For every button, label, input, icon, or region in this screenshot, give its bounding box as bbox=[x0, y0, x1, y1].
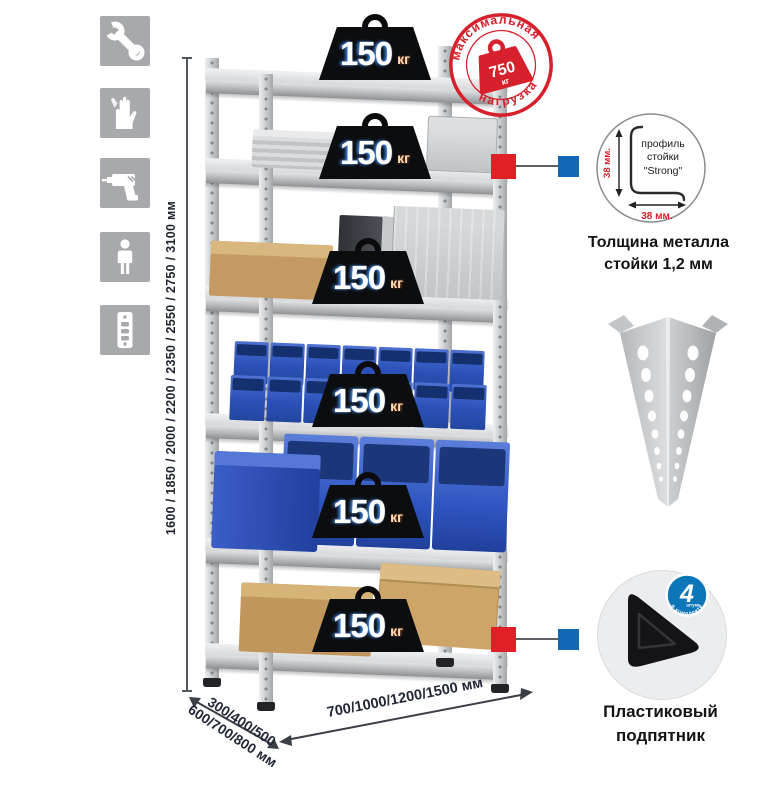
quantity-badge: 4 штуки в комплекте bbox=[664, 572, 710, 618]
weight-icon: 150 кг bbox=[319, 27, 431, 80]
rack-foot bbox=[257, 702, 275, 711]
rack-foot bbox=[203, 678, 221, 687]
connector-blue-square-top bbox=[558, 156, 579, 177]
wrench-icon bbox=[100, 16, 150, 66]
profile-detail-circle: 38 мм. 38 мм. профиль стойки "Strong" bbox=[586, 106, 716, 236]
weight-icon: 150 кг bbox=[319, 126, 431, 179]
shelf-6 bbox=[206, 655, 507, 680]
connector-blue-square-bottom bbox=[558, 629, 579, 650]
gloves-icon bbox=[100, 88, 150, 138]
load-badge-shelf-1: 150 кг bbox=[319, 14, 431, 80]
product-infographic: 1600 / 1850 / 2000 / 2200 / 2350 / 2550 … bbox=[0, 0, 765, 765]
plastic-foot-caption: Пластиковый подпятник bbox=[578, 700, 743, 748]
svg-text:профиль: профиль bbox=[641, 138, 685, 150]
load-badge-shelf-2: 150 кг bbox=[319, 113, 431, 179]
weight-icon: 150 кг bbox=[312, 251, 424, 304]
corner-post-image bbox=[598, 303, 748, 523]
large-bin-left bbox=[211, 451, 321, 552]
stamp-weight-icon: 750 кг bbox=[470, 35, 531, 92]
profile-dim-horizontal: 38 мм. bbox=[641, 211, 673, 222]
height-dimension-label: 1600 / 1850 / 2000 / 2200 / 2350 / 2550 … bbox=[164, 201, 178, 535]
load-badge-shelf-3: 150 кг bbox=[312, 238, 424, 304]
weight-icon: 150 кг bbox=[312, 485, 424, 538]
profile-label: профиль стойки "Strong" bbox=[641, 138, 685, 177]
weight-icon: 150 кг bbox=[312, 374, 424, 427]
drill-icon bbox=[100, 158, 150, 208]
connector-red-square-bottom bbox=[491, 627, 516, 652]
height-dimension-line bbox=[186, 57, 188, 692]
profile-dim-vertical: 38 мм. bbox=[602, 148, 613, 178]
profile-caption: Толщина металла стойки 1,2 мм bbox=[566, 232, 751, 276]
rack-post-icon bbox=[100, 305, 150, 355]
svg-text:"Strong": "Strong" bbox=[644, 165, 683, 177]
load-badge-shelf-4: 150 кг bbox=[312, 361, 424, 427]
person-icon bbox=[100, 232, 150, 282]
weight-icon: 150 кг bbox=[312, 599, 424, 652]
rack-foot bbox=[436, 658, 454, 667]
load-badge-shelf-5: 150 кг bbox=[312, 472, 424, 538]
svg-text:стойки: стойки bbox=[647, 151, 679, 163]
load-badge-shelf-6: 150 кг bbox=[312, 586, 424, 652]
rear-left-upright bbox=[205, 58, 219, 682]
connector-red-square-top bbox=[491, 154, 516, 179]
connector-line-top bbox=[516, 165, 558, 167]
rack-foot bbox=[491, 684, 509, 693]
connector-line-bottom bbox=[516, 638, 558, 640]
